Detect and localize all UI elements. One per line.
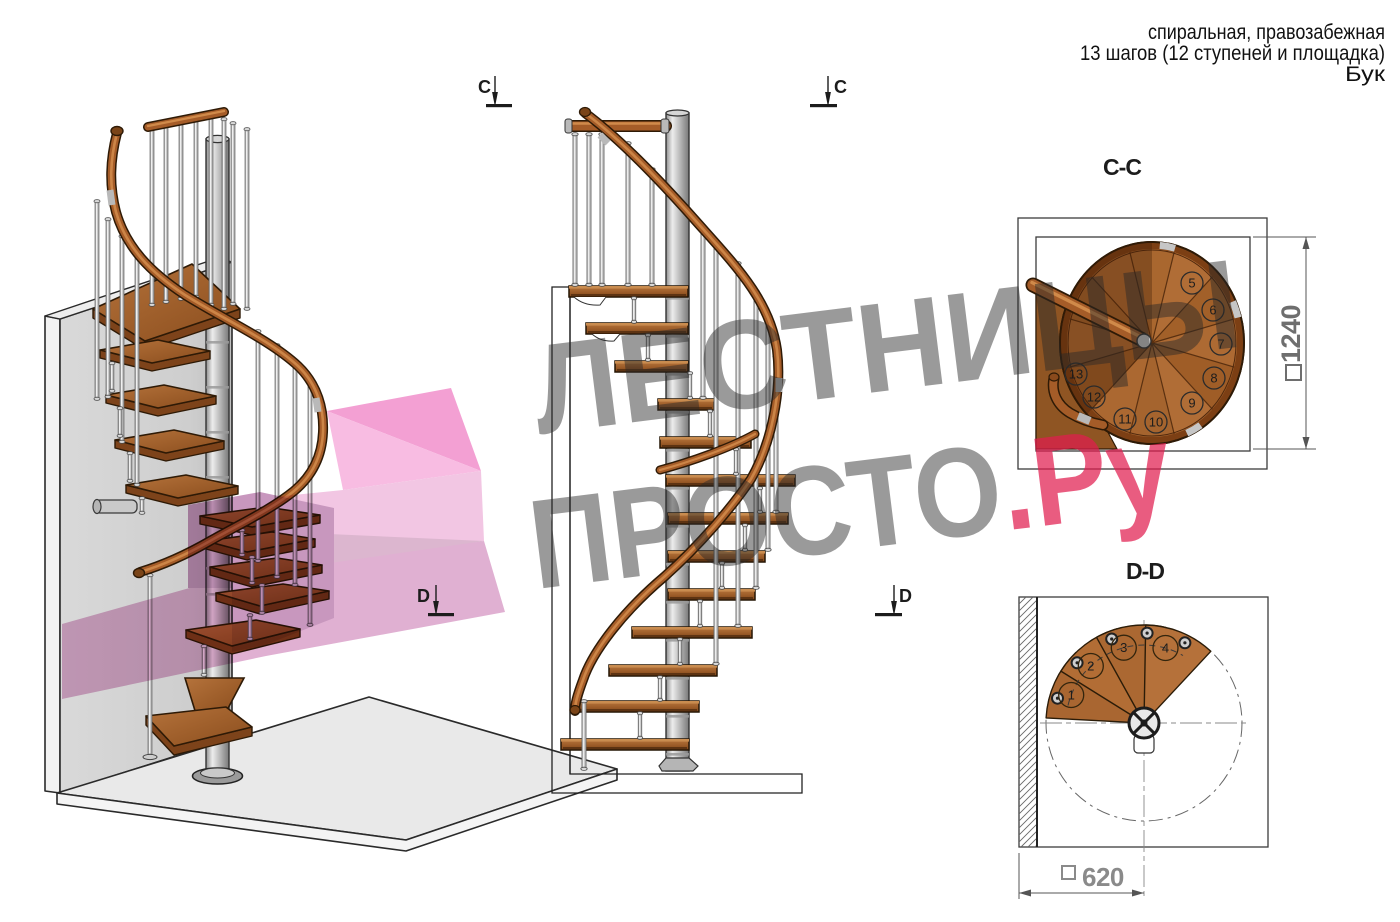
svg-text:4: 4 (1162, 641, 1169, 656)
svg-text:9: 9 (1188, 396, 1195, 411)
svg-text:D: D (417, 586, 430, 606)
svg-text:C: C (834, 77, 847, 97)
svg-text:D-D: D-D (1126, 558, 1164, 584)
svg-text:1: 1 (1068, 688, 1075, 703)
svg-text:спиральная, правозабежная: спиральная, правозабежная (1148, 21, 1385, 44)
svg-text:620: 620 (1082, 862, 1124, 892)
svg-text:C-C: C-C (1103, 154, 1141, 180)
svg-text:C: C (478, 77, 491, 97)
svg-text:3: 3 (1120, 640, 1127, 655)
svg-text:D: D (899, 586, 912, 606)
svg-text:13 шагов (12 ступеней и площад: 13 шагов (12 ступеней и площадка) (1080, 42, 1385, 65)
svg-text:1240: 1240 (1276, 305, 1306, 363)
svg-text:2: 2 (1087, 659, 1094, 674)
svg-text:Бук: Бук (1345, 63, 1386, 86)
